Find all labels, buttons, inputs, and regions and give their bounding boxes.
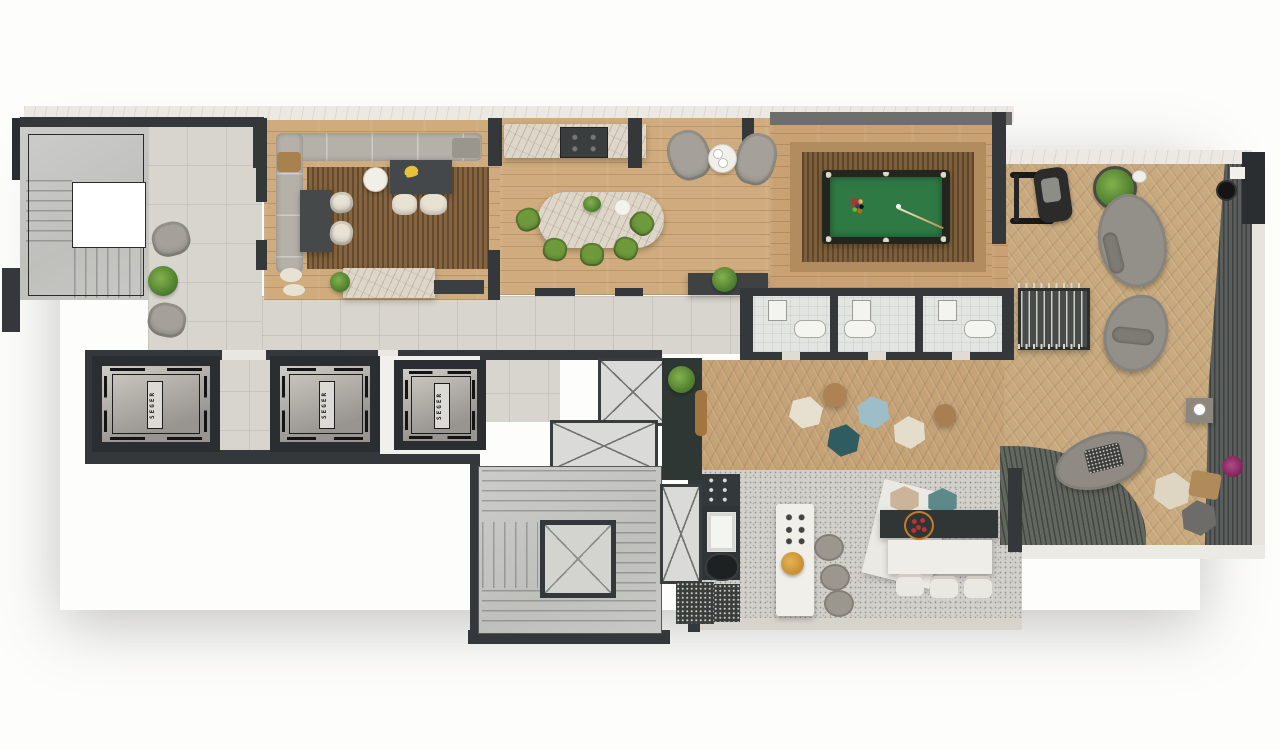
- corridor-hex-wall: [740, 296, 753, 360]
- lounge-media-console: [434, 280, 484, 294]
- coffee-cup-2: [718, 158, 728, 168]
- elevator-3-rail-right: [472, 380, 475, 430]
- core-cabinet-plant: [668, 366, 695, 393]
- lounge-ottoman-2: [420, 194, 447, 215]
- lounge-west-wall-a: [256, 168, 267, 202]
- hall-door-gap-1: [222, 350, 266, 360]
- deck-mat-tan: [1188, 470, 1222, 501]
- core-stair-landing: [540, 520, 616, 598]
- bottom-right-parapet: [1012, 545, 1265, 559]
- kitchen-chair-1: [896, 574, 924, 596]
- bath-divider-2: [915, 288, 923, 360]
- lounge-west-wall-b: [256, 240, 267, 270]
- stair-top-wall: [20, 117, 264, 127]
- stair-flight-left: [26, 180, 72, 250]
- island-stool-2: [820, 564, 850, 591]
- elevator-2-door-top: [287, 368, 363, 371]
- corridor-floor: [262, 296, 748, 354]
- toilet-2: [844, 320, 876, 338]
- lounge-ottoman-1: [392, 194, 417, 215]
- floor-plan: SEGER SEGER SEGER: [0, 0, 1280, 750]
- stair-landing: [72, 182, 146, 248]
- bathrooms-top-wall: [745, 288, 1012, 296]
- bath-door-gap-1: [782, 352, 800, 360]
- cooktop: [560, 127, 608, 158]
- stair-flight-bottom: [74, 248, 146, 298]
- billiards-top-wall: [770, 112, 1012, 125]
- elevator-2-label: SEGER: [319, 381, 335, 429]
- lounge-console-plant: [330, 272, 350, 292]
- elevator-2-rail-left: [282, 376, 285, 432]
- hall-console-plant: [712, 267, 737, 292]
- kitchen-stove-block: [700, 474, 740, 506]
- kitchen-chair-2: [930, 576, 958, 598]
- elevator-1-door-bottom: [110, 437, 202, 440]
- core-stair-flight-top: [482, 470, 656, 520]
- lounge-console: [343, 268, 435, 298]
- island-stool-1: [814, 534, 844, 561]
- kitchen-right-wall: [1008, 468, 1022, 552]
- bath-wall-right: [1002, 288, 1014, 360]
- lobby-plant: [148, 266, 178, 296]
- dining-table-plant: [583, 196, 601, 212]
- foosball-table: [1018, 288, 1090, 350]
- elevator-3-door-top: [409, 371, 471, 374]
- elevator-2-door-bottom: [287, 437, 363, 440]
- elevator-1-rail-right: [204, 376, 207, 432]
- billiards-terrace-passage: [992, 244, 1008, 290]
- lounge-coffee-table: [390, 160, 452, 194]
- elevator-1-door-top: [110, 368, 202, 371]
- dining-wall-stub-1: [535, 288, 575, 296]
- sink-3: [938, 300, 957, 321]
- pouf-round-tan-1: [823, 383, 847, 407]
- dining-chair-3: [580, 243, 605, 267]
- elevator-3-label: SEGER: [434, 383, 450, 429]
- lounge-dining-wall-low: [488, 250, 500, 300]
- kitchen-sink: [707, 512, 736, 552]
- hex-lounge-floor: [698, 360, 1012, 480]
- elevator-3-rail-left: [405, 380, 408, 430]
- dining-plate: [614, 199, 631, 216]
- gym-machine-pad: [1040, 177, 1061, 203]
- terrace-top-parapet: [1000, 150, 1252, 164]
- gold-pan: [781, 552, 804, 575]
- bath-door-gap-2: [868, 352, 886, 360]
- bar-counter: [880, 510, 998, 538]
- terrace-corner-wall: [1242, 152, 1265, 224]
- billiard-ball-rack: [850, 198, 866, 214]
- lounge-side-table: [300, 190, 332, 252]
- dining-pillar-mid: [628, 118, 642, 168]
- gym-machine-rail: [1014, 174, 1019, 222]
- service-shaft-a: [598, 358, 668, 426]
- island-stool-3: [824, 590, 854, 617]
- pool-pockets: [826, 172, 946, 242]
- bath-divider-1: [830, 288, 838, 360]
- core-grate: [676, 582, 714, 624]
- service-shaft-c: [660, 484, 702, 584]
- dining-wall-stub-2: [615, 288, 643, 296]
- sofa-throw-blanket: [277, 152, 301, 172]
- service-shaft-b: [550, 420, 658, 472]
- island-cooktop: [780, 509, 810, 547]
- kitchen-edge: [698, 618, 1022, 630]
- lounge-pouf-small-1: [280, 268, 302, 282]
- lounge-corner-console: [452, 138, 480, 158]
- billiards-right-wall: [992, 112, 1006, 244]
- lounge-round-table: [363, 167, 388, 192]
- sink-1: [768, 300, 787, 321]
- kitchen-table: [888, 540, 992, 574]
- terrace-grill: [1216, 180, 1237, 201]
- toilet-3: [964, 320, 996, 338]
- lounge-pillar-left: [253, 118, 267, 168]
- foosball-handles-top: [1018, 283, 1084, 288]
- elevator-1-rail-left: [104, 376, 107, 432]
- kitchen-grill: [705, 553, 739, 581]
- toilet-1: [794, 320, 826, 338]
- bath-door-gap-3: [952, 352, 970, 360]
- purple-plant: [1222, 456, 1243, 477]
- terrace-white-box: [1230, 167, 1245, 179]
- kitchen-chair-3: [964, 576, 992, 598]
- sink-2: [852, 300, 871, 321]
- pouf-round-tan-2: [934, 404, 956, 426]
- elevator-2-rail-right: [365, 376, 368, 432]
- lounge-dining-pillar: [488, 118, 502, 166]
- core-stair-flight-left: [482, 522, 538, 588]
- terrace-small-pot: [1132, 170, 1147, 183]
- left-facade-pillar: [2, 268, 20, 332]
- cutting-board: [695, 390, 707, 436]
- pizza: [904, 511, 934, 540]
- terrace-coffee-cup: [1193, 403, 1206, 416]
- elevator-1-label: SEGER: [147, 381, 163, 429]
- foosball-handles-bottom: [1018, 344, 1084, 349]
- lounge-pouf-small-2: [283, 284, 305, 296]
- elevator-3-door-bottom: [409, 436, 471, 439]
